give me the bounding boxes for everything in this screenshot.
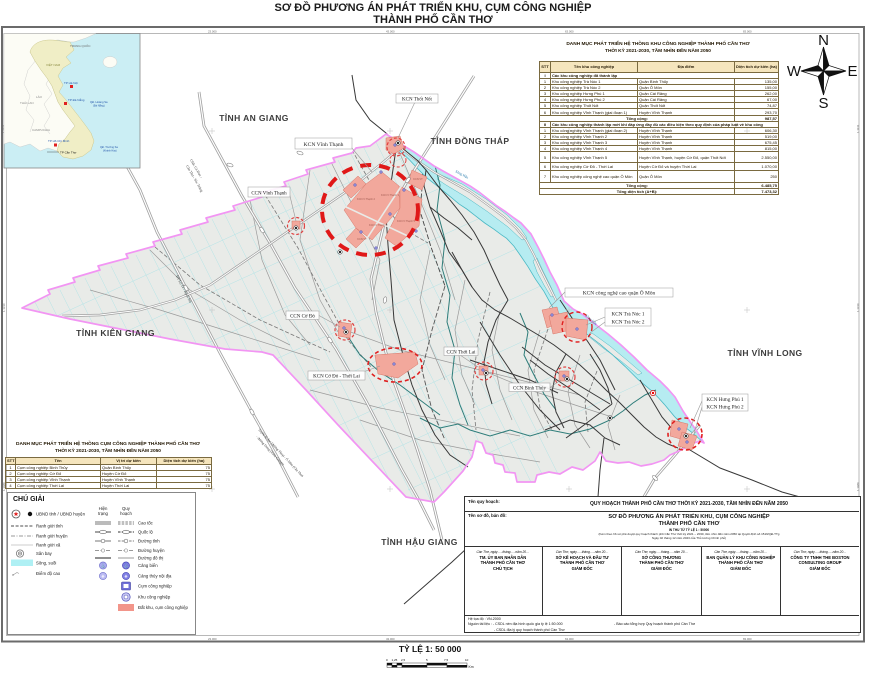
svg-text:1.1489: 1.1489 bbox=[856, 482, 860, 491]
svg-text:TP Hà Nội: TP Hà Nội bbox=[64, 81, 78, 85]
svg-text:KCN Trà Nóc 2: KCN Trà Nóc 2 bbox=[611, 319, 644, 325]
svg-text:CCN Cờ Đỏ: CCN Cờ Đỏ bbox=[290, 314, 315, 319]
svg-text:Cao tốc: Cao tốc bbox=[138, 521, 154, 526]
svg-text:trạng: trạng bbox=[98, 511, 108, 516]
svg-text:W: W bbox=[787, 63, 802, 80]
svg-text:1.1310: 1.1310 bbox=[2, 303, 6, 312]
svg-text:Cảng thủy nội địa: Cảng thủy nội địa bbox=[138, 574, 172, 579]
svg-text:N: N bbox=[818, 32, 829, 49]
svg-text:1.1310: 1.1310 bbox=[856, 303, 860, 312]
svg-text:LÀO: LÀO bbox=[36, 95, 43, 99]
svg-text:Sân bay: Sân bay bbox=[36, 551, 53, 556]
svg-text:KCN Hưng Phú 1: KCN Hưng Phú 1 bbox=[706, 397, 744, 403]
svg-text:63.000: 63.000 bbox=[565, 30, 574, 34]
svg-text:KCN V.Thạnh 5: KCN V.Thạnh 5 bbox=[397, 219, 415, 223]
svg-text:Quốc lộ: Quốc lộ bbox=[138, 530, 153, 535]
svg-text:(Đà Nẵng): (Đà Nẵng) bbox=[93, 105, 105, 108]
svg-text:0: 0 bbox=[386, 658, 388, 662]
svg-text:QĐ. Hoàng Sa: QĐ. Hoàng Sa bbox=[90, 100, 108, 104]
svg-text:Ranh giới xã: Ranh giới xã bbox=[36, 543, 61, 548]
svg-text:43.000: 43.000 bbox=[386, 637, 395, 641]
svg-text:1,25: 1,25 bbox=[392, 658, 398, 662]
svg-text:KCN Trà Nóc 1: KCN Trà Nóc 1 bbox=[611, 312, 644, 318]
svg-text:KCN V.Thạnh 4: KCN V.Thạnh 4 bbox=[369, 223, 387, 227]
svg-text:Km: Km bbox=[469, 665, 474, 669]
svg-text:VIỆT NAM: VIỆT NAM bbox=[46, 62, 61, 67]
svg-text:⚓: ⚓ bbox=[124, 563, 129, 568]
svg-text:TP Hồ Chí Minh: TP Hồ Chí Minh bbox=[48, 139, 70, 143]
svg-text:23.000: 23.000 bbox=[208, 637, 217, 641]
svg-text:5: 5 bbox=[426, 658, 428, 662]
svg-text:Đường tỉnh: Đường tỉnh bbox=[138, 539, 160, 544]
svg-text:Ranh giới tỉnh: Ranh giới tỉnh bbox=[36, 524, 63, 529]
svg-text:KCN Vĩnh Thạnh: KCN Vĩnh Thạnh bbox=[304, 142, 344, 148]
svg-text:Đất khu, cụm công nghiệp: Đất khu, cụm công nghiệp bbox=[138, 605, 189, 610]
svg-text:THÁI LAN: THÁI LAN bbox=[20, 101, 34, 105]
svg-text:KCN VT: KCN VT bbox=[357, 237, 367, 241]
svg-text:CCN Bình Thủy: CCN Bình Thủy bbox=[513, 386, 546, 391]
svg-text:KCN VT: KCN VT bbox=[413, 177, 423, 181]
svg-text:Điểm độ cao: Điểm độ cao bbox=[36, 571, 61, 576]
svg-text:23.000: 23.000 bbox=[208, 30, 217, 34]
svg-text:Tuyến lộ dọc (đường Thoại - Ô: Tuyến lộ dọc (đường Thoại - Ô Môn (Cần T… bbox=[257, 427, 305, 478]
svg-text:KCN Thốt Nốt: KCN Thốt Nốt bbox=[402, 98, 433, 103]
svg-text:hoạch: hoạch bbox=[120, 511, 132, 516]
svg-text:1.1131: 1.1131 bbox=[856, 124, 860, 133]
svg-text:Đường đô thị: Đường đô thị bbox=[138, 556, 163, 561]
svg-text:KCN Cờ Đỏ - Thới Lai: KCN Cờ Đỏ - Thới Lai bbox=[313, 375, 360, 380]
svg-text:TP Đà Nẵng: TP Đà Nẵng bbox=[68, 97, 85, 102]
svg-text:UBND tỉnh / UBND huyện: UBND tỉnh / UBND huyện bbox=[36, 512, 86, 517]
svg-text:CCN Thới Lai: CCN Thới Lai bbox=[447, 350, 477, 355]
svg-text:Đường huyện: Đường huyện bbox=[138, 548, 165, 553]
svg-text:CCN Vĩnh Thạnh: CCN Vĩnh Thạnh bbox=[251, 191, 287, 196]
svg-text:KCN công nghệ cao quận Ô Môn: KCN công nghệ cao quận Ô Môn bbox=[583, 289, 656, 297]
svg-text:E: E bbox=[847, 63, 857, 80]
svg-text:Cảng biển: Cảng biển bbox=[138, 563, 158, 568]
svg-text:TRUNG QUỐC: TRUNG QUỐC bbox=[70, 43, 91, 48]
svg-text:83.000: 83.000 bbox=[743, 30, 752, 34]
svg-text:S: S bbox=[818, 95, 828, 112]
svg-text:⚓: ⚓ bbox=[101, 563, 106, 568]
svg-text:43.000: 43.000 bbox=[386, 30, 395, 34]
svg-text:83.000: 83.000 bbox=[743, 637, 752, 641]
svg-text:KCN V.Thạnh 2: KCN V.Thạnh 2 bbox=[357, 197, 375, 201]
svg-text:10: 10 bbox=[465, 658, 469, 662]
svg-text:CAMPUCHIA: CAMPUCHIA bbox=[32, 128, 50, 132]
svg-text:QĐ. Trường Sa: QĐ. Trường Sa bbox=[100, 145, 118, 149]
svg-text:Khu công nghiệp: Khu công nghiệp bbox=[138, 595, 171, 600]
svg-text:Sông, suối: Sông, suối bbox=[36, 561, 56, 566]
svg-text:Ranh giới huyện: Ranh giới huyện bbox=[36, 534, 68, 539]
svg-text:TP Cần Thơ: TP Cần Thơ bbox=[60, 151, 76, 155]
svg-text:KCN Hưng Phú 2: KCN Hưng Phú 2 bbox=[706, 405, 744, 411]
svg-text:63.000: 63.000 bbox=[565, 637, 574, 641]
svg-text:Cụm công nghiệp: Cụm công nghiệp bbox=[138, 584, 172, 589]
svg-text:(Khánh Hòa): (Khánh Hòa) bbox=[103, 150, 117, 153]
svg-text:7,5: 7,5 bbox=[444, 658, 449, 662]
svg-text:2,5: 2,5 bbox=[401, 658, 406, 662]
svg-text:KCN V.Thạnh 3: KCN V.Thạnh 3 bbox=[381, 193, 399, 197]
